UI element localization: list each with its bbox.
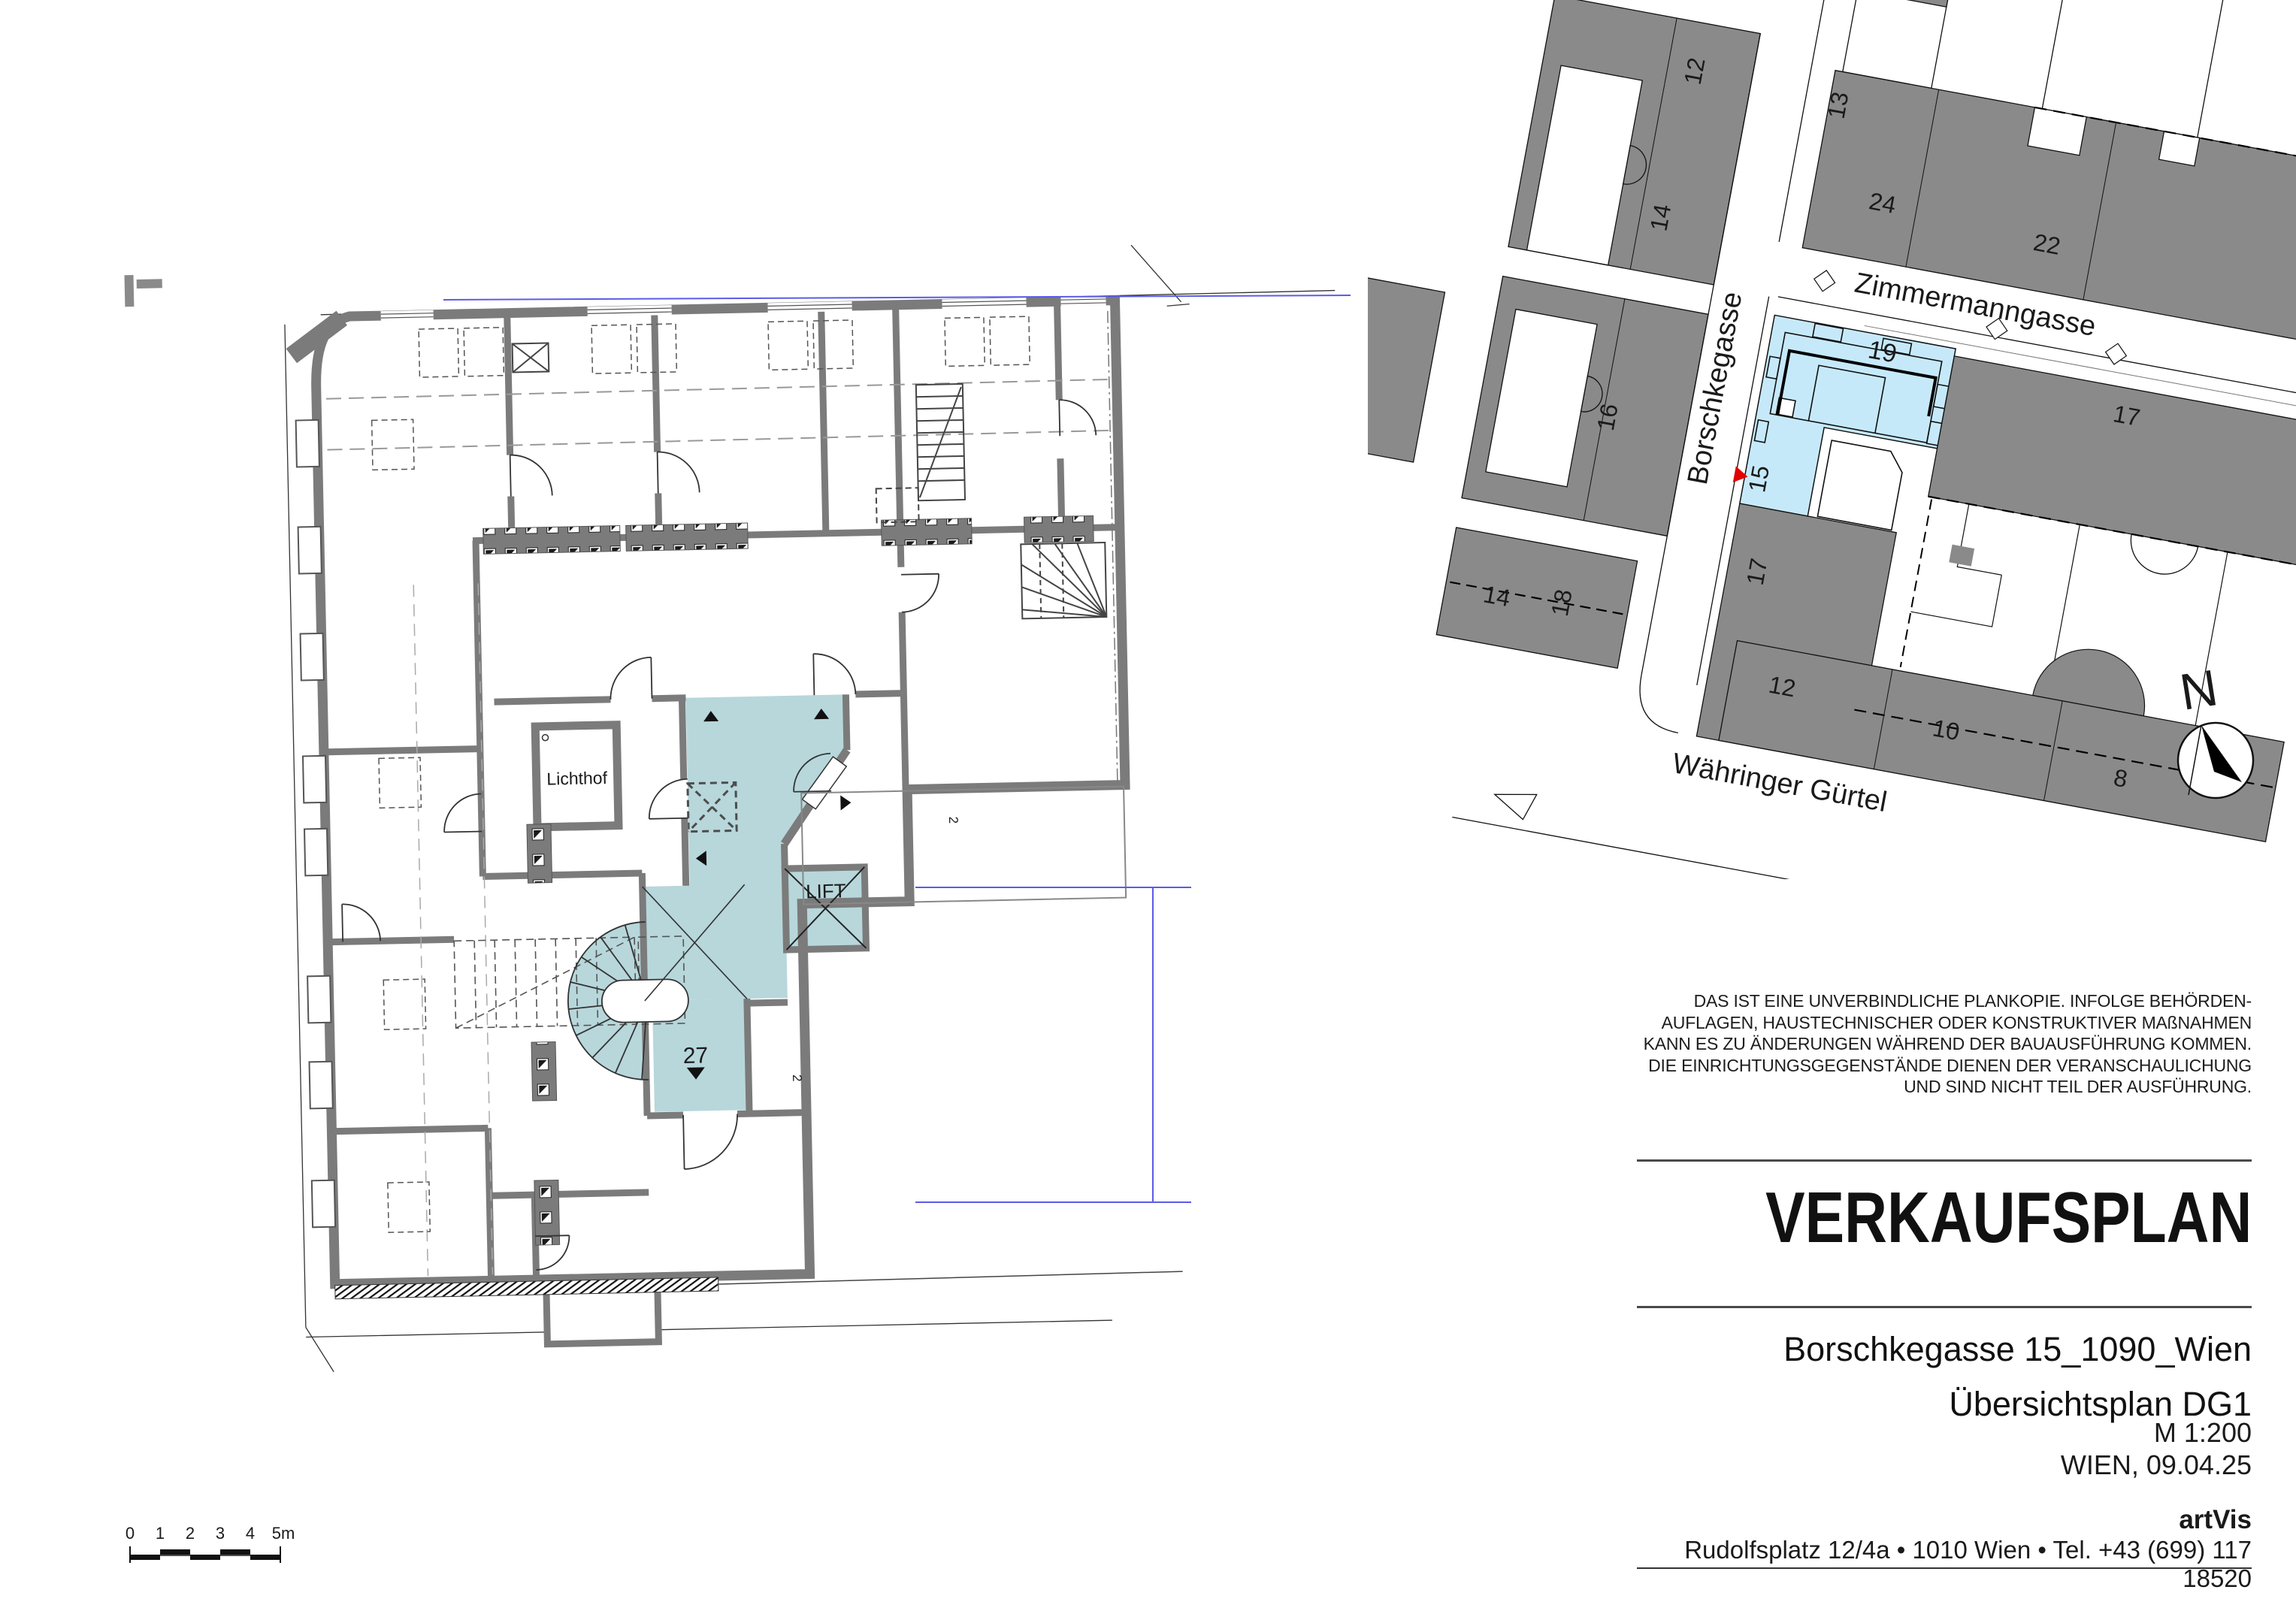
scale-tick-1: 1 bbox=[156, 1524, 165, 1543]
l-stair bbox=[874, 384, 966, 522]
house-parcel-19: 19 bbox=[1866, 335, 1899, 368]
disclaimer: DAS IST EINE UNVERBINDLICHE PLANKOPIE. I… bbox=[1628, 990, 2252, 1098]
divider-bottom bbox=[1637, 1567, 2252, 1569]
company-name: artVis bbox=[1628, 1505, 2252, 1535]
north-letter: N bbox=[2176, 659, 2221, 721]
house-north-24: 24 bbox=[1867, 187, 1898, 219]
house-guertel-10: 10 bbox=[1931, 714, 1962, 745]
house-east-17: 17 bbox=[2111, 400, 2143, 431]
site-map: Zimmermanngasse Borschkegasse Währinger … bbox=[1257, 0, 2296, 975]
disclaimer-line-3: KANN ES ZU ÄNDERUNGEN WÄHREND DER BAUAUS… bbox=[1628, 1033, 2252, 1055]
fixture-x-box bbox=[513, 343, 549, 372]
disclaimer-line-5: UND SIND NICHT TEIL DER AUSFÜHRUNG. bbox=[1628, 1076, 2252, 1098]
house-west-12: 12 bbox=[1679, 56, 1711, 87]
house-west-18: 18 bbox=[1546, 587, 1578, 618]
project-address: Borschkegasse 15_1090_Wien bbox=[1628, 1330, 2252, 1369]
scale-tick-2: 2 bbox=[186, 1524, 195, 1543]
company-address: Rudolfsplatz 12/4a • 1010 Wien • Tel. +4… bbox=[1628, 1536, 2252, 1593]
winder-stair bbox=[1021, 543, 1106, 618]
site-target-parcel bbox=[1740, 315, 1959, 537]
scale-note: M 1:200 bbox=[1628, 1417, 2252, 1449]
scale-tick-4: 4 bbox=[246, 1524, 255, 1543]
page-title: VERKAUFSPLAN bbox=[1575, 1177, 2252, 1259]
house-west-14b: 14 bbox=[1481, 580, 1513, 612]
disclaimer-line-4: DIE EINRICHTUNGSGEGENSTÄNDE DIENEN DER V… bbox=[1628, 1055, 2252, 1077]
floor-plan: Lichthof LIFT 27 2 2 bbox=[124, 241, 1357, 1376]
house-south-17: 17 bbox=[1741, 556, 1773, 588]
city-date: WIEN, 09.04.25 bbox=[1628, 1449, 2252, 1481]
door-width-label-1: 2 bbox=[946, 816, 960, 824]
scale-tick-0: 0 bbox=[126, 1524, 135, 1543]
divider-mid bbox=[1637, 1306, 2252, 1308]
plan-sheet: Lichthof LIFT 27 2 2 0 1 2 3 4 5m bbox=[0, 0, 2296, 1623]
disclaimer-line-2: AUFLAGEN, HAUSTECHNISCHER ODER KONSTRUKT… bbox=[1628, 1012, 2252, 1034]
scale-tick-5: 5m bbox=[272, 1524, 295, 1543]
disclaimer-line-1: DAS IST EINE UNVERBINDLICHE PLANKOPIE. I… bbox=[1628, 990, 2252, 1012]
label-lift: LIFT bbox=[806, 879, 846, 902]
house-guertel-12: 12 bbox=[1767, 671, 1798, 703]
label-lichthof: Lichthof bbox=[546, 768, 608, 789]
scale-tick-3: 3 bbox=[216, 1524, 225, 1543]
left-window-bays bbox=[296, 418, 431, 1234]
drawing-canvas: Lichthof LIFT 27 2 2 0 1 2 3 4 5m bbox=[0, 0, 2296, 1623]
divider-top bbox=[1637, 1159, 2252, 1162]
house-west-16: 16 bbox=[1592, 401, 1623, 433]
house-north-13: 13 bbox=[1823, 89, 1854, 121]
site-west-blocks bbox=[1289, 0, 1761, 672]
label-apartment-27: 27 bbox=[682, 1043, 708, 1068]
door-width-label-2: 2 bbox=[790, 1074, 804, 1082]
house-street-15: 15 bbox=[1743, 463, 1774, 494]
house-west-14: 14 bbox=[1644, 202, 1676, 234]
house-north-22: 22 bbox=[2031, 228, 2063, 260]
scale-bar: 0 1 2 3 4 5m bbox=[126, 1524, 295, 1563]
